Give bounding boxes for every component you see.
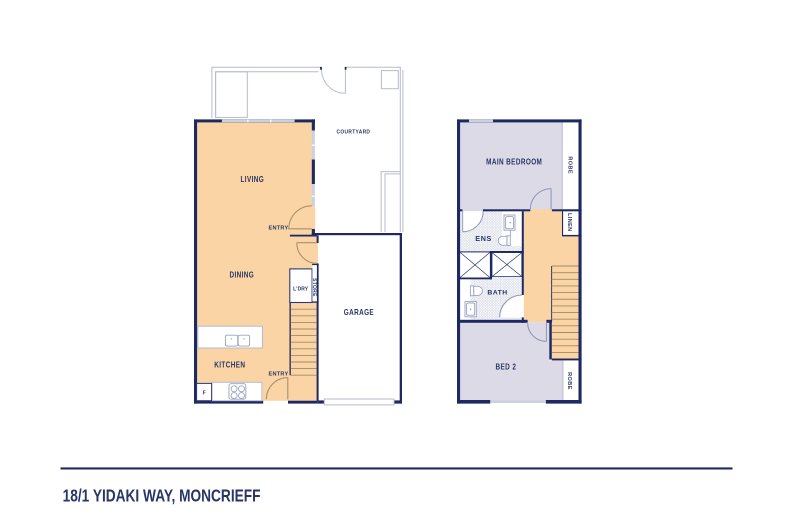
svg-text:ROBE: ROBE (566, 156, 572, 174)
svg-text:ENS: ENS (475, 234, 492, 243)
svg-text:DINING: DINING (229, 270, 254, 280)
svg-text:F: F (203, 390, 206, 396)
svg-text:ENTRY: ENTRY (268, 371, 288, 377)
svg-text:ENTRY: ENTRY (268, 225, 288, 231)
svg-text:L'DRY: L'DRY (293, 287, 309, 293)
svg-text:LIVING: LIVING (240, 174, 264, 184)
svg-text:COURTYARD: COURTYARD (337, 129, 371, 135)
svg-text:MAIN BEDROOM: MAIN BEDROOM (486, 157, 542, 167)
svg-text:GARAGE: GARAGE (344, 307, 374, 317)
svg-text:BATH: BATH (487, 289, 507, 296)
svg-text:KITCHEN: KITCHEN (214, 360, 245, 370)
svg-text:STORE: STORE (311, 278, 317, 297)
svg-text:18/1 YIDAKI WAY, MONCRIEFF: 18/1 YIDAKI WAY, MONCRIEFF (63, 487, 261, 506)
svg-text:ROBE: ROBE (566, 372, 572, 390)
svg-text:BED 2: BED 2 (496, 362, 517, 372)
svg-text:LINEN: LINEN (566, 213, 572, 232)
